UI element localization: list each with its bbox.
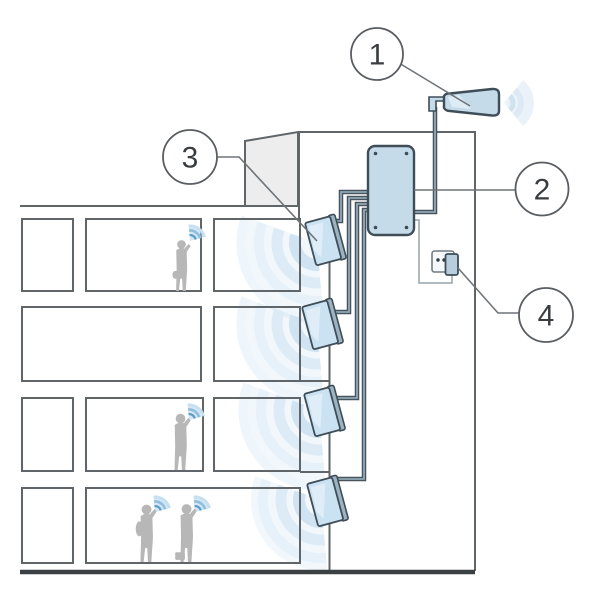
screw-icon <box>374 226 378 230</box>
outlet-pin-hole <box>436 258 439 261</box>
callout-number-2: 2 <box>534 174 551 207</box>
screw-icon <box>374 152 378 156</box>
outdoor-antenna-waves <box>504 80 534 126</box>
person-floor4-left <box>136 505 157 562</box>
person-floor4-right <box>175 504 197 562</box>
screw-icon <box>405 226 409 230</box>
amplifier-box <box>368 146 414 235</box>
backpack <box>136 521 143 536</box>
repeater-amplifier <box>368 146 414 235</box>
outdoor-antenna-cable-core <box>414 107 435 212</box>
person-head <box>182 504 192 514</box>
person-floor3 <box>175 414 191 470</box>
leader-4 <box>458 268 520 313</box>
room <box>22 398 73 471</box>
repeater-system-diagram: 1 2 3 4 <box>0 0 600 600</box>
person-head <box>176 414 186 424</box>
person-body <box>140 509 156 562</box>
person-body <box>175 418 191 470</box>
handbag <box>172 271 178 279</box>
antenna-bracket <box>429 97 444 111</box>
briefcase <box>175 552 185 560</box>
roof-penthouse <box>245 132 298 206</box>
room <box>22 219 73 291</box>
power-outlet <box>432 251 458 275</box>
screw-icon <box>405 152 409 156</box>
outlet-plug <box>446 254 459 275</box>
callout-number-1: 1 <box>369 39 386 72</box>
person-body <box>176 244 191 291</box>
person-head <box>142 505 152 515</box>
outdoor-antenna-cable <box>414 107 435 212</box>
room <box>22 307 201 381</box>
person-head <box>177 240 186 249</box>
diagram-canvas: 1 2 3 4 <box>0 0 600 600</box>
room <box>22 488 73 563</box>
person-floor1 <box>172 240 190 291</box>
callout-number-3: 3 <box>182 142 199 175</box>
callout-number-4: 4 <box>538 300 555 333</box>
